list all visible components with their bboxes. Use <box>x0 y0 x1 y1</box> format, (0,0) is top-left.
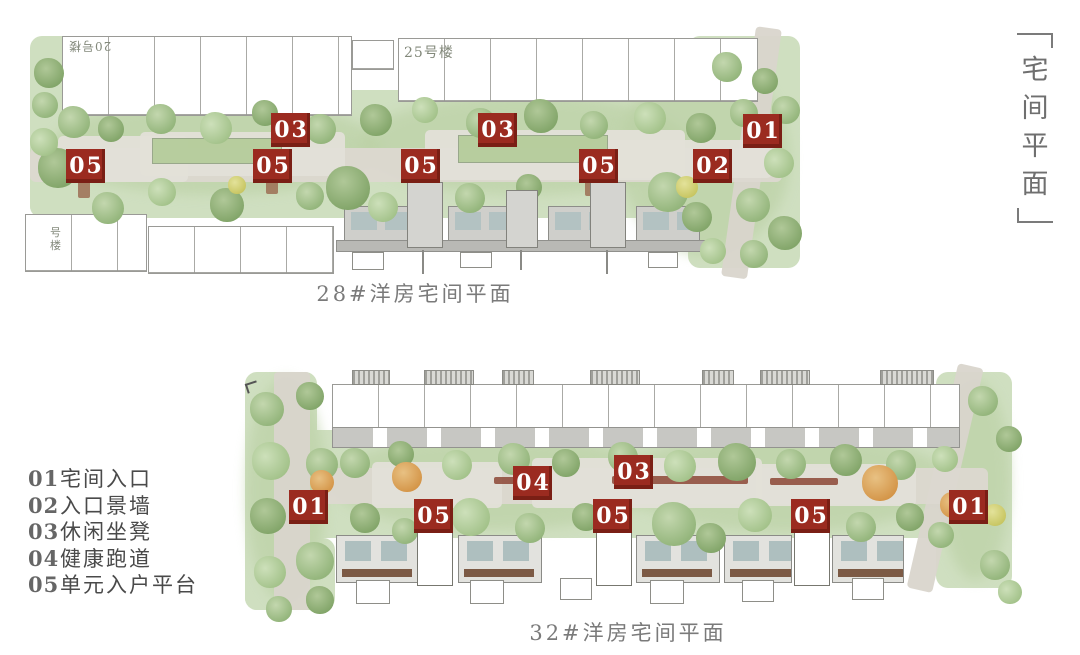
building-outline <box>25 214 147 272</box>
tree <box>350 503 380 533</box>
tree <box>736 188 770 222</box>
tree <box>442 450 472 480</box>
stoop <box>560 578 592 600</box>
building-outline <box>352 40 394 70</box>
tree <box>98 116 124 142</box>
stoop <box>460 252 492 268</box>
tree <box>928 522 954 548</box>
stair-core <box>506 190 538 248</box>
tree <box>764 148 794 178</box>
tree <box>146 104 176 134</box>
legend-num: 01 <box>28 466 60 491</box>
plan-marker: 04 <box>513 466 552 500</box>
plan-marker: 02 <box>693 149 732 183</box>
building-outline <box>148 226 334 274</box>
tree <box>412 97 438 123</box>
tree <box>968 386 998 416</box>
tree <box>686 113 716 143</box>
tree <box>34 58 64 88</box>
tree <box>776 449 806 479</box>
tree <box>664 450 696 482</box>
bracket-top-icon <box>1017 33 1053 48</box>
plan-marker: 01 <box>289 490 328 524</box>
building-label: 25号楼 <box>404 42 454 62</box>
tree <box>254 556 286 588</box>
legend-num: 03 <box>28 519 60 544</box>
tree <box>718 443 756 481</box>
legend-item: 05 单元入户平台 <box>28 569 198 596</box>
legend-label: 健康跑道 <box>60 543 152 573</box>
building-unit <box>832 535 904 583</box>
legend-num: 02 <box>28 493 60 518</box>
tree <box>296 542 334 580</box>
plan-marker: 03 <box>614 455 653 489</box>
stoop <box>352 252 384 270</box>
tree <box>998 580 1022 604</box>
tree <box>148 178 176 206</box>
plan-marker: 05 <box>593 499 632 533</box>
tree <box>682 202 712 232</box>
legend-item: 02 入口景墙 <box>28 490 198 517</box>
tree <box>200 112 232 144</box>
plan-caption-32: 32#洋房宅间平面 <box>243 617 1013 647</box>
plan-marker: 01 <box>949 490 988 524</box>
tree <box>524 99 558 133</box>
legend-label: 单元入户平台 <box>60 569 198 599</box>
tree <box>30 128 58 156</box>
tree <box>296 182 324 210</box>
tree <box>306 586 334 614</box>
legend-num: 04 <box>28 546 60 571</box>
roof-detail <box>424 370 474 385</box>
plan-marker: 03 <box>478 113 517 147</box>
tree <box>252 442 290 480</box>
tree <box>696 523 726 553</box>
jogging-track <box>770 478 838 485</box>
tree <box>932 446 958 472</box>
stoop <box>470 580 504 604</box>
tree <box>250 498 286 534</box>
tree <box>740 240 768 268</box>
tree <box>250 392 284 426</box>
plan-marker: 01 <box>743 114 782 148</box>
tree <box>228 176 246 194</box>
bracket-bottom-icon <box>1017 208 1053 223</box>
legend-label: 入口景墙 <box>60 490 152 520</box>
legend-item: 04 健康跑道 <box>28 543 198 570</box>
vertical-title: 宅 间 平 面 <box>1012 33 1058 223</box>
tree <box>296 382 324 410</box>
tree <box>768 216 802 250</box>
plan-marker: 05 <box>579 149 618 183</box>
building-label: 20号楼 <box>68 38 111 55</box>
plan-marker: 05 <box>401 149 440 183</box>
tree <box>712 52 742 82</box>
plan-marker: 05 <box>414 499 453 533</box>
path-stem <box>422 250 424 274</box>
tree <box>652 502 696 546</box>
roof-detail <box>590 370 640 385</box>
stair-core <box>407 182 443 248</box>
tree <box>515 513 545 543</box>
tree <box>996 426 1022 452</box>
path-stem <box>606 250 608 274</box>
page: 20号楼 25号楼 号楼 05 03 05 05 03 05 02 01 28#… <box>0 0 1080 655</box>
stoop <box>356 580 390 604</box>
tree <box>552 449 580 477</box>
tree <box>580 111 608 139</box>
title-char: 间 <box>1012 90 1058 128</box>
tree <box>368 192 398 222</box>
stoop <box>852 578 884 600</box>
title-char: 平 <box>1012 128 1058 166</box>
tree <box>58 106 90 138</box>
tree <box>360 104 392 136</box>
stair-core <box>590 182 626 248</box>
building-unit <box>724 535 792 583</box>
plan-caption-28: 28#洋房宅间平面 <box>30 278 800 308</box>
plan-marker: 05 <box>66 149 105 183</box>
legend-item: 01 宅间入口 <box>28 463 198 490</box>
tree <box>455 183 485 213</box>
legend-label: 宅间入口 <box>60 463 152 493</box>
legend: 01 宅间入口 02 入口景墙 03 休闲坐凳 04 健康跑道 05 单元入户平… <box>28 463 198 596</box>
tree <box>862 465 898 501</box>
balcony-band <box>332 427 960 448</box>
title-char: 面 <box>1012 166 1058 204</box>
roof-detail <box>352 370 390 385</box>
plan-marker: 05 <box>791 499 830 533</box>
plan-marker: 03 <box>271 113 310 147</box>
stoop <box>650 580 684 604</box>
building-outline <box>332 384 960 430</box>
tree <box>634 102 666 134</box>
plan-marker: 05 <box>253 149 292 183</box>
legend-label: 休闲坐凳 <box>60 516 152 546</box>
path-stem <box>520 250 522 270</box>
roof-detail <box>702 370 734 385</box>
stoop <box>742 580 774 602</box>
tree <box>392 462 422 492</box>
legend-item: 03 休闲坐凳 <box>28 516 198 543</box>
stoop <box>648 252 678 268</box>
roof-detail <box>880 370 934 385</box>
tree <box>980 550 1010 580</box>
tree <box>752 68 778 94</box>
title-char: 宅 <box>1012 52 1058 90</box>
legend-num: 05 <box>28 572 60 597</box>
tree <box>700 238 726 264</box>
roof-detail <box>502 370 534 385</box>
tree <box>92 192 124 224</box>
roof-detail <box>760 370 810 385</box>
building-label: 号楼 <box>50 226 63 252</box>
tree <box>896 503 924 531</box>
tree <box>340 448 370 478</box>
tree <box>830 444 862 476</box>
tree <box>846 512 876 542</box>
tree <box>738 498 772 532</box>
tree <box>452 498 490 536</box>
tree <box>326 166 370 210</box>
tree <box>32 92 58 118</box>
tree <box>306 114 336 144</box>
